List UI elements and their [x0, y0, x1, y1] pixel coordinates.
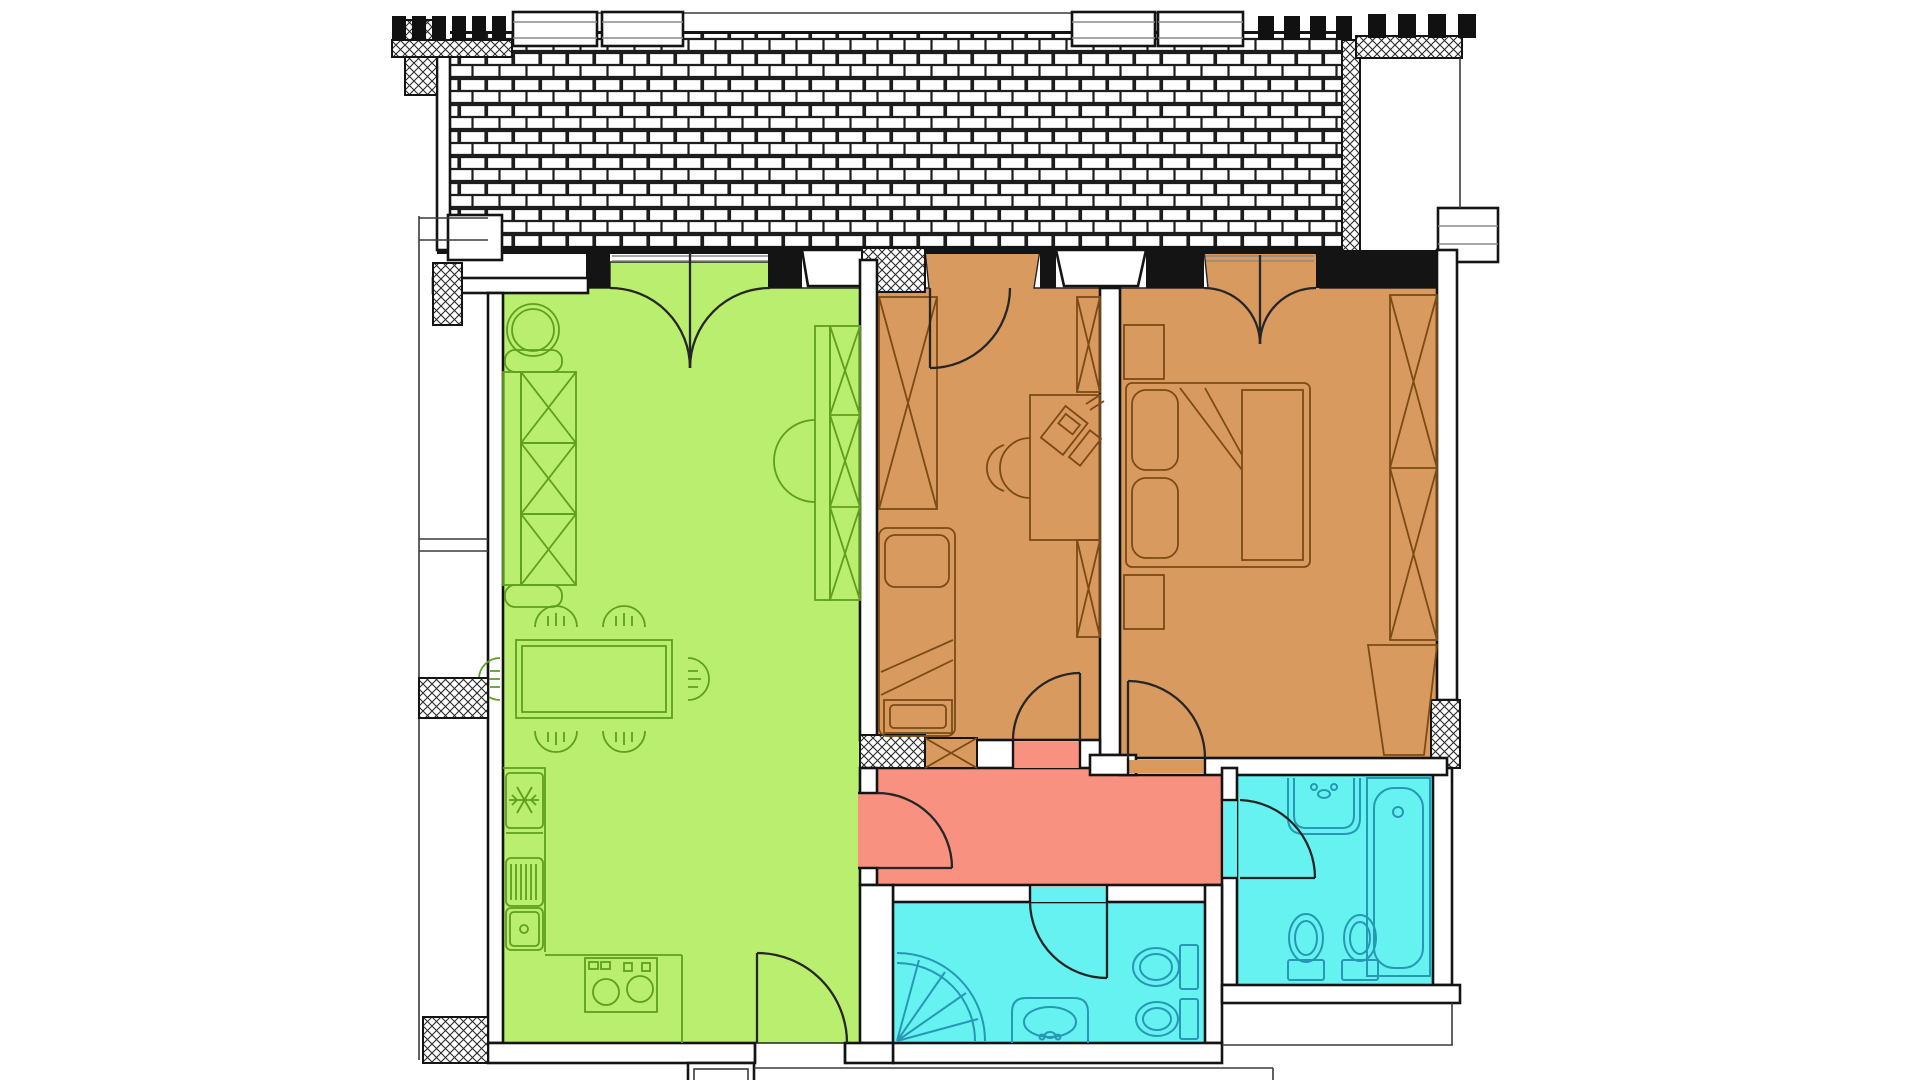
bottom-wall-right [845, 1043, 893, 1063]
bath-right-bottom-wall [1222, 985, 1460, 1003]
bathroom-lower-floor [893, 902, 1205, 1043]
window-3 [1072, 12, 1155, 46]
bath-right-door-gap [1224, 800, 1237, 878]
bath-lower-door-gap [1030, 887, 1107, 902]
wall-seg-a [586, 250, 610, 288]
parapet-dashes-right [1368, 14, 1476, 38]
terrace-niche-box [448, 215, 502, 260]
shaft-box [925, 738, 977, 768]
wall-seg-e [1316, 250, 1438, 288]
wall-living-bedroom1 [860, 260, 877, 740]
entrance-landing [688, 1063, 1273, 1080]
terrace [392, 12, 1498, 262]
window-1 [513, 12, 597, 46]
bedroom1-door-gap [1013, 742, 1080, 768]
floor-plan-page [0, 0, 1920, 1080]
bath-lower-right-wall [1205, 885, 1222, 1043]
bedroom2-door-gap [1128, 760, 1205, 773]
wall-seg-d [1146, 250, 1204, 288]
bedroom-1-floor [877, 250, 1100, 740]
bathroom-right-outer-wall [1433, 768, 1452, 985]
wall-bedroom1-bedroom2 [1100, 288, 1120, 755]
living-room-floor [503, 262, 860, 1043]
terrace-left-hatch-strip [392, 40, 512, 57]
bottom-wall-left [488, 1043, 755, 1063]
pillar-left-mid [419, 678, 488, 718]
wall-seg-c [1040, 250, 1056, 288]
window-2 [602, 12, 683, 46]
pillar-top-left [433, 263, 462, 325]
wall-seg-b [768, 250, 802, 288]
window-4 [1158, 12, 1243, 46]
right-bottom-step [1222, 1003, 1452, 1045]
terrace-right-wall-hatch [1342, 40, 1360, 252]
floor-plan-svg [0, 0, 1920, 1080]
bath-lower-bottom-wall [893, 1043, 1222, 1063]
pillar-bedroom1-bottom [860, 735, 925, 768]
terrace-right-hatch-strip [1356, 36, 1462, 58]
living-hall-door-gap [858, 793, 879, 868]
bedroom2-right-wall [1437, 250, 1457, 700]
bedroom1-window-bay [1056, 250, 1146, 286]
terrace-brick-paving [450, 33, 1342, 250]
living-bath-lower-wall [860, 885, 893, 1043]
living-left-wall [488, 293, 503, 1043]
pillar-left-bottom [423, 1017, 488, 1063]
